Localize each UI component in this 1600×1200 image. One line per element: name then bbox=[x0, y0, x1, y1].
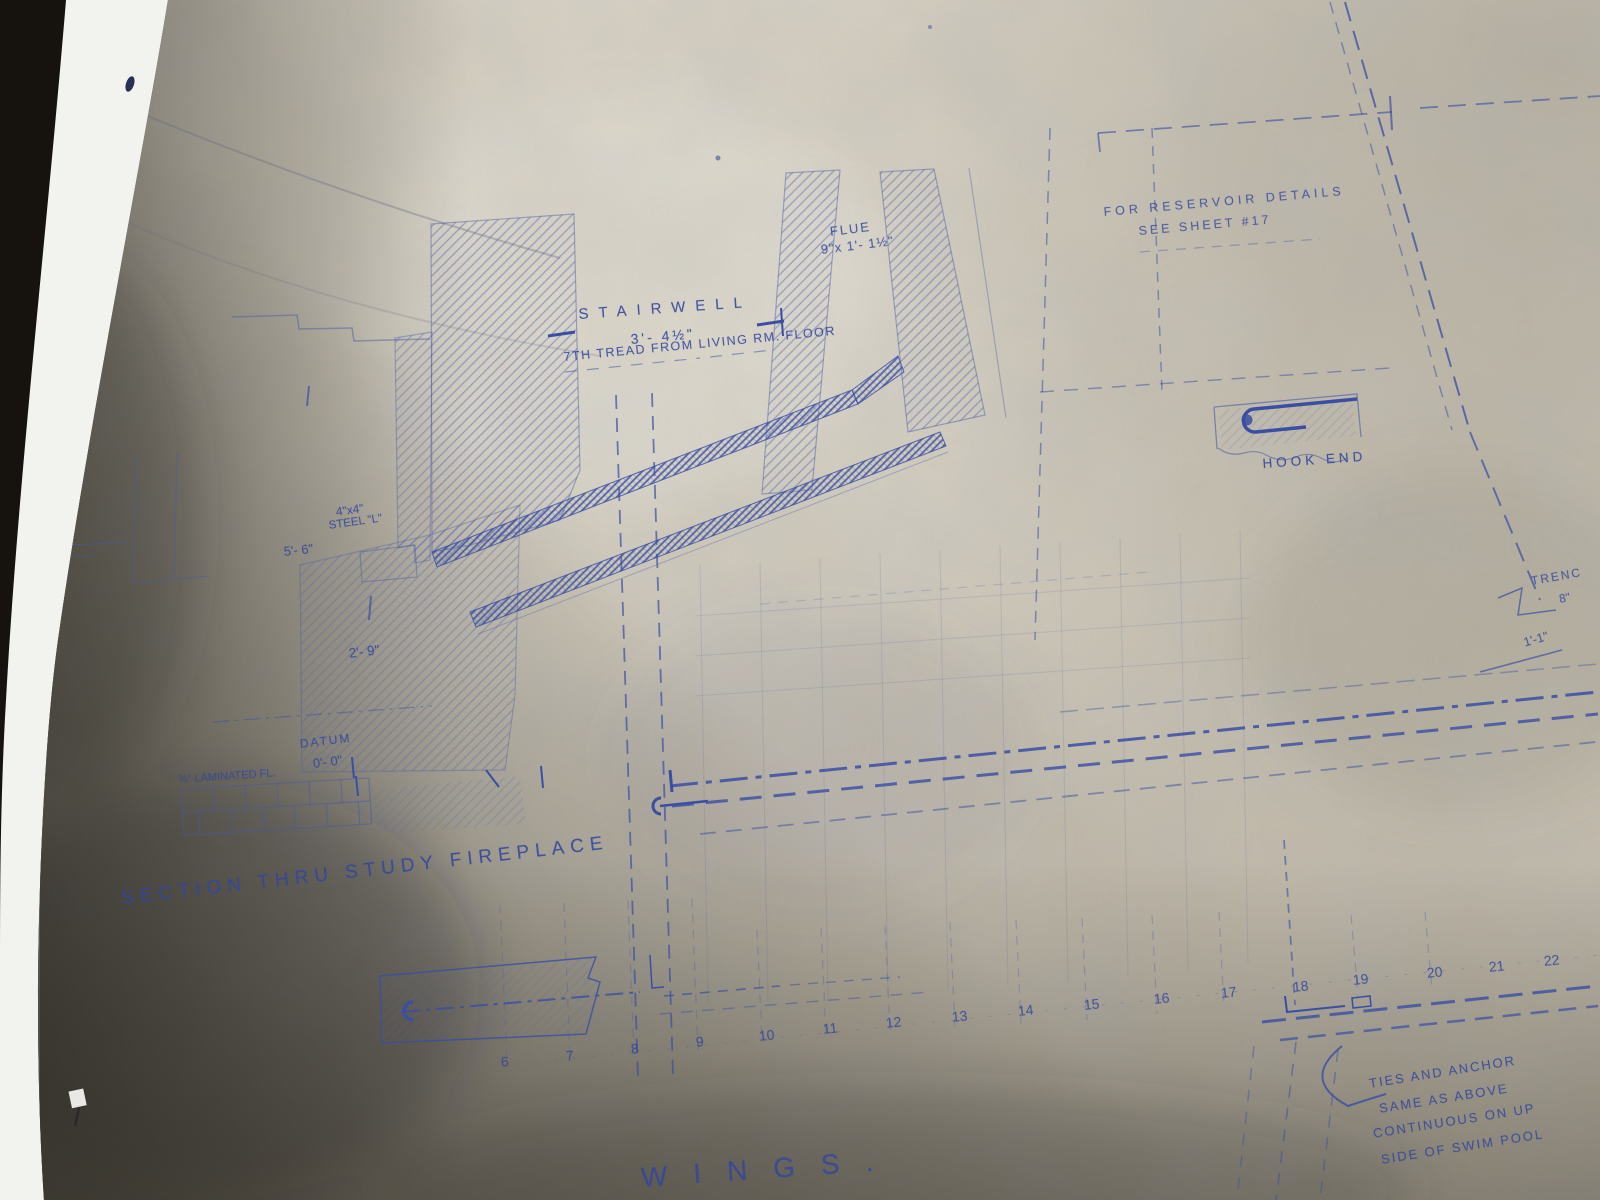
grid-number: 13 bbox=[951, 1007, 968, 1025]
grid-number: 9 bbox=[695, 1033, 704, 1050]
grid-number: 12 bbox=[885, 1013, 902, 1031]
grid-number: 10 bbox=[758, 1026, 775, 1044]
grid-number: 11 bbox=[822, 1019, 838, 1036]
grid-number: 20 bbox=[1426, 963, 1443, 981]
trench-size: 8" bbox=[1558, 590, 1571, 606]
grid-number: 18 bbox=[1292, 977, 1309, 995]
dim-5ft6: 5'- 6" bbox=[283, 541, 314, 559]
grid-number: 17 bbox=[1220, 983, 1237, 1001]
blueprint-photo: STAIRWELL 3'- 4½" 7TH TREAD FROM LIVING … bbox=[0, 0, 1600, 1200]
grid-number: 7 bbox=[565, 1047, 574, 1064]
paper-sheet bbox=[0, 0, 1600, 1200]
grid-number: 19 bbox=[1352, 970, 1369, 988]
blueprint-drawing bbox=[0, 0, 1600, 1200]
grid-number: 16 bbox=[1153, 989, 1170, 1007]
grid-number: 15 bbox=[1083, 995, 1100, 1013]
grid-number: 21 bbox=[1488, 957, 1505, 975]
grid-number: 8 bbox=[630, 1040, 639, 1057]
grid-number: 22 bbox=[1543, 951, 1560, 969]
grid-number: 6 bbox=[500, 1053, 509, 1070]
grid-number: 14 bbox=[1017, 1001, 1034, 1019]
